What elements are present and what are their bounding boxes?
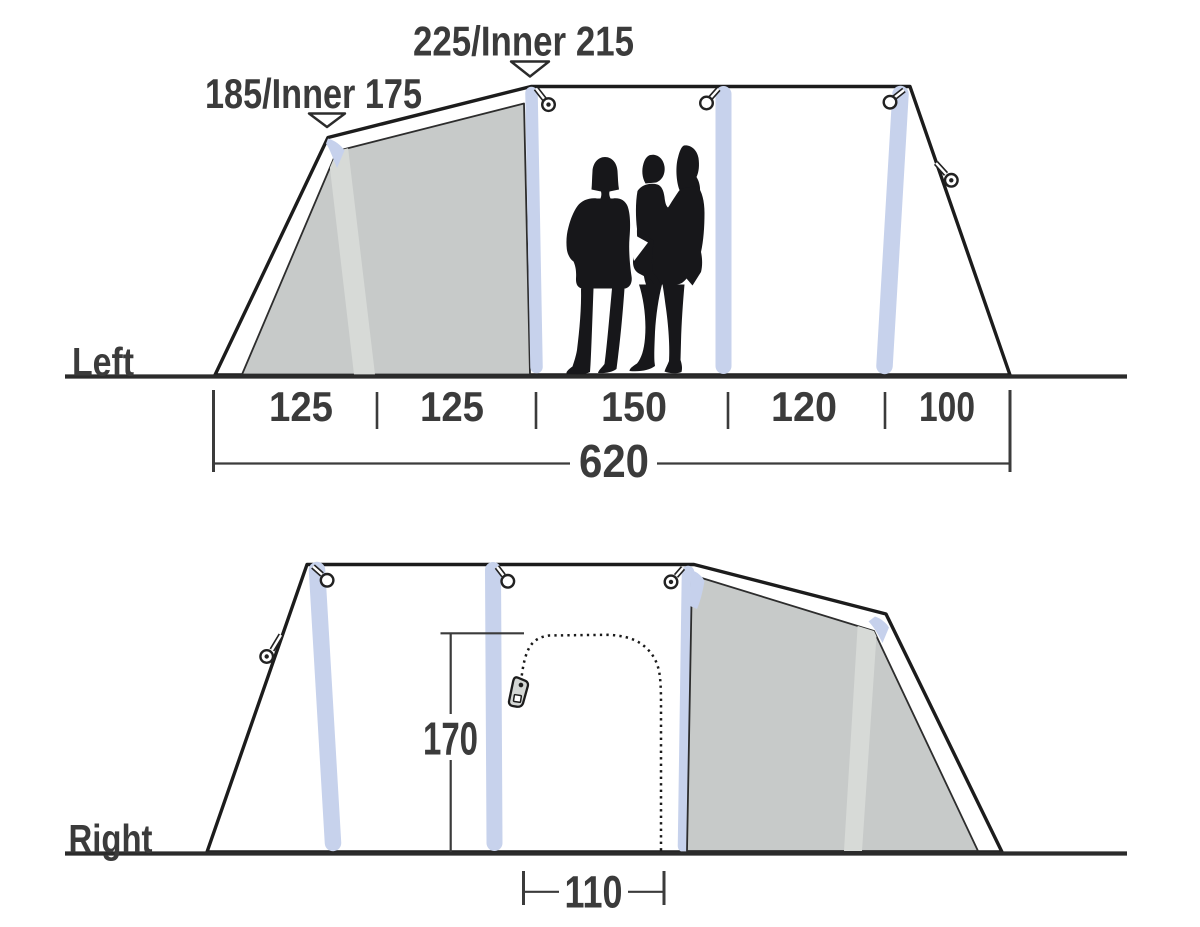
svg-text:125: 125 [269,383,333,430]
svg-text:150: 150 [601,383,667,430]
svg-text:Left: Left [72,341,134,385]
svg-text:225/Inner 215: 225/Inner 215 [413,18,634,65]
svg-text:110: 110 [565,867,623,918]
svg-text:185/Inner 175: 185/Inner 175 [205,70,422,117]
svg-text:100: 100 [919,383,975,430]
svg-text:120: 120 [771,383,837,430]
svg-text:170: 170 [423,713,478,765]
svg-text:620: 620 [579,435,649,487]
svg-text:125: 125 [420,383,484,430]
svg-text:Right: Right [69,818,153,862]
